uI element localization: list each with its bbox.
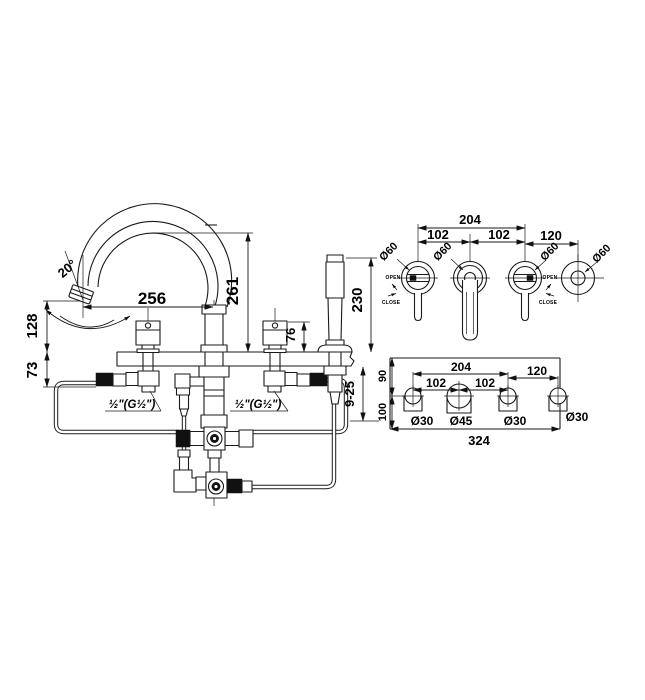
top-dim-offset: 120 xyxy=(540,228,562,243)
plan-hole-2 xyxy=(444,381,474,413)
hole-dia-1: Ø30 xyxy=(411,414,434,428)
top-dim-pitch-left: 102 xyxy=(427,227,449,242)
close-arrow-left xyxy=(388,294,396,297)
diagram-svg: 20° 256 261 128 73 76 230 xyxy=(0,0,645,700)
top-left-lever xyxy=(415,293,422,321)
left-handle xyxy=(136,308,160,353)
plan-hole-3 xyxy=(497,385,519,411)
diverter-barb xyxy=(242,481,252,492)
top-right-handle: OPEN CLOSE Ø60 xyxy=(505,240,561,320)
plan-dim-span: 204 xyxy=(451,360,471,374)
plan-hole-4 xyxy=(547,385,569,411)
faucet-spec-diagram: 20° 256 261 128 73 76 230 xyxy=(0,0,645,700)
tee-right-nut xyxy=(239,430,253,447)
right-valve-connection xyxy=(264,366,327,392)
dim-spout-reach: 256 xyxy=(138,289,166,308)
dim-shower-height: 230 xyxy=(349,287,366,312)
left-connection-label: ½"(G½") xyxy=(109,399,156,411)
handshower xyxy=(318,255,352,352)
close-label-right: CLOSE xyxy=(539,300,558,306)
top-view: 204 102 102 120 OPEN CLOSE Ø60 xyxy=(377,212,613,340)
close-arrow-right xyxy=(546,294,554,297)
dim-outlet-height: 128 xyxy=(24,313,41,338)
top-dim-pitch-right: 102 xyxy=(488,227,510,242)
left-elbow xyxy=(138,371,159,386)
dim-spout-angle: 20° xyxy=(55,256,80,280)
swivel-arc-inner xyxy=(60,316,114,327)
dim-deck-range: 9-25 xyxy=(342,381,357,407)
dia-label-2: Ø60 xyxy=(431,240,454,263)
handshower-escutcheon xyxy=(318,345,352,352)
hole-dia-2: Ø45 xyxy=(450,414,473,428)
dim-under-deck: 73 xyxy=(24,362,41,379)
right-thread xyxy=(297,374,310,386)
diverter-elbow xyxy=(174,470,196,492)
diverter-nut xyxy=(227,479,242,493)
plan-dim-front: 100 xyxy=(377,403,389,421)
top-dim-span: 204 xyxy=(459,212,481,227)
check-valve xyxy=(175,374,204,416)
plan-dim-pitch-right: 102 xyxy=(475,376,495,390)
dia-label-4: Ø60 xyxy=(590,242,613,265)
close-label-left: CLOSE xyxy=(382,300,401,306)
open-arrow-right xyxy=(546,284,551,290)
swivel-arc-arrow xyxy=(46,310,130,329)
plan-dim-offset: 120 xyxy=(527,364,547,378)
plan-dim-total: 324 xyxy=(468,433,490,448)
top-right-lever xyxy=(522,293,529,321)
open-label-left: OPEN xyxy=(386,275,401,281)
front-elevation-view: 20° 256 261 128 73 76 230 xyxy=(24,204,379,506)
top-left-handle: OPEN CLOSE Ø60 xyxy=(377,240,438,320)
left-hose-nut xyxy=(96,373,113,386)
plan-view: 324 xyxy=(377,358,589,448)
top-shower-holder: Ø60 xyxy=(554,242,613,302)
left-thread xyxy=(113,374,126,386)
plan-dim-rear: 90 xyxy=(377,370,389,382)
left-valve-connection xyxy=(96,366,159,392)
dia-label-1: Ø60 xyxy=(377,240,400,263)
spout-base-flange xyxy=(201,345,227,352)
handshower-grip xyxy=(326,262,344,298)
hole-dia-4: Ø30 xyxy=(566,410,589,424)
dim-handle-height: 76 xyxy=(283,328,298,342)
right-connection-label: ½"(G½") xyxy=(235,399,282,411)
dim-spout-height: 261 xyxy=(223,277,242,305)
plan-dim-pitch-left: 102 xyxy=(426,376,446,390)
deck xyxy=(117,352,354,366)
handshower-hose xyxy=(250,404,334,487)
plan-hole-1 xyxy=(402,385,424,411)
top-spout-body xyxy=(463,280,478,340)
tee-left-nut xyxy=(176,430,190,447)
open-arrow-left xyxy=(392,284,397,290)
top-spout: Ø60 xyxy=(431,240,490,340)
hole-dia-3: Ø30 xyxy=(504,414,527,428)
right-elbow xyxy=(264,371,285,386)
